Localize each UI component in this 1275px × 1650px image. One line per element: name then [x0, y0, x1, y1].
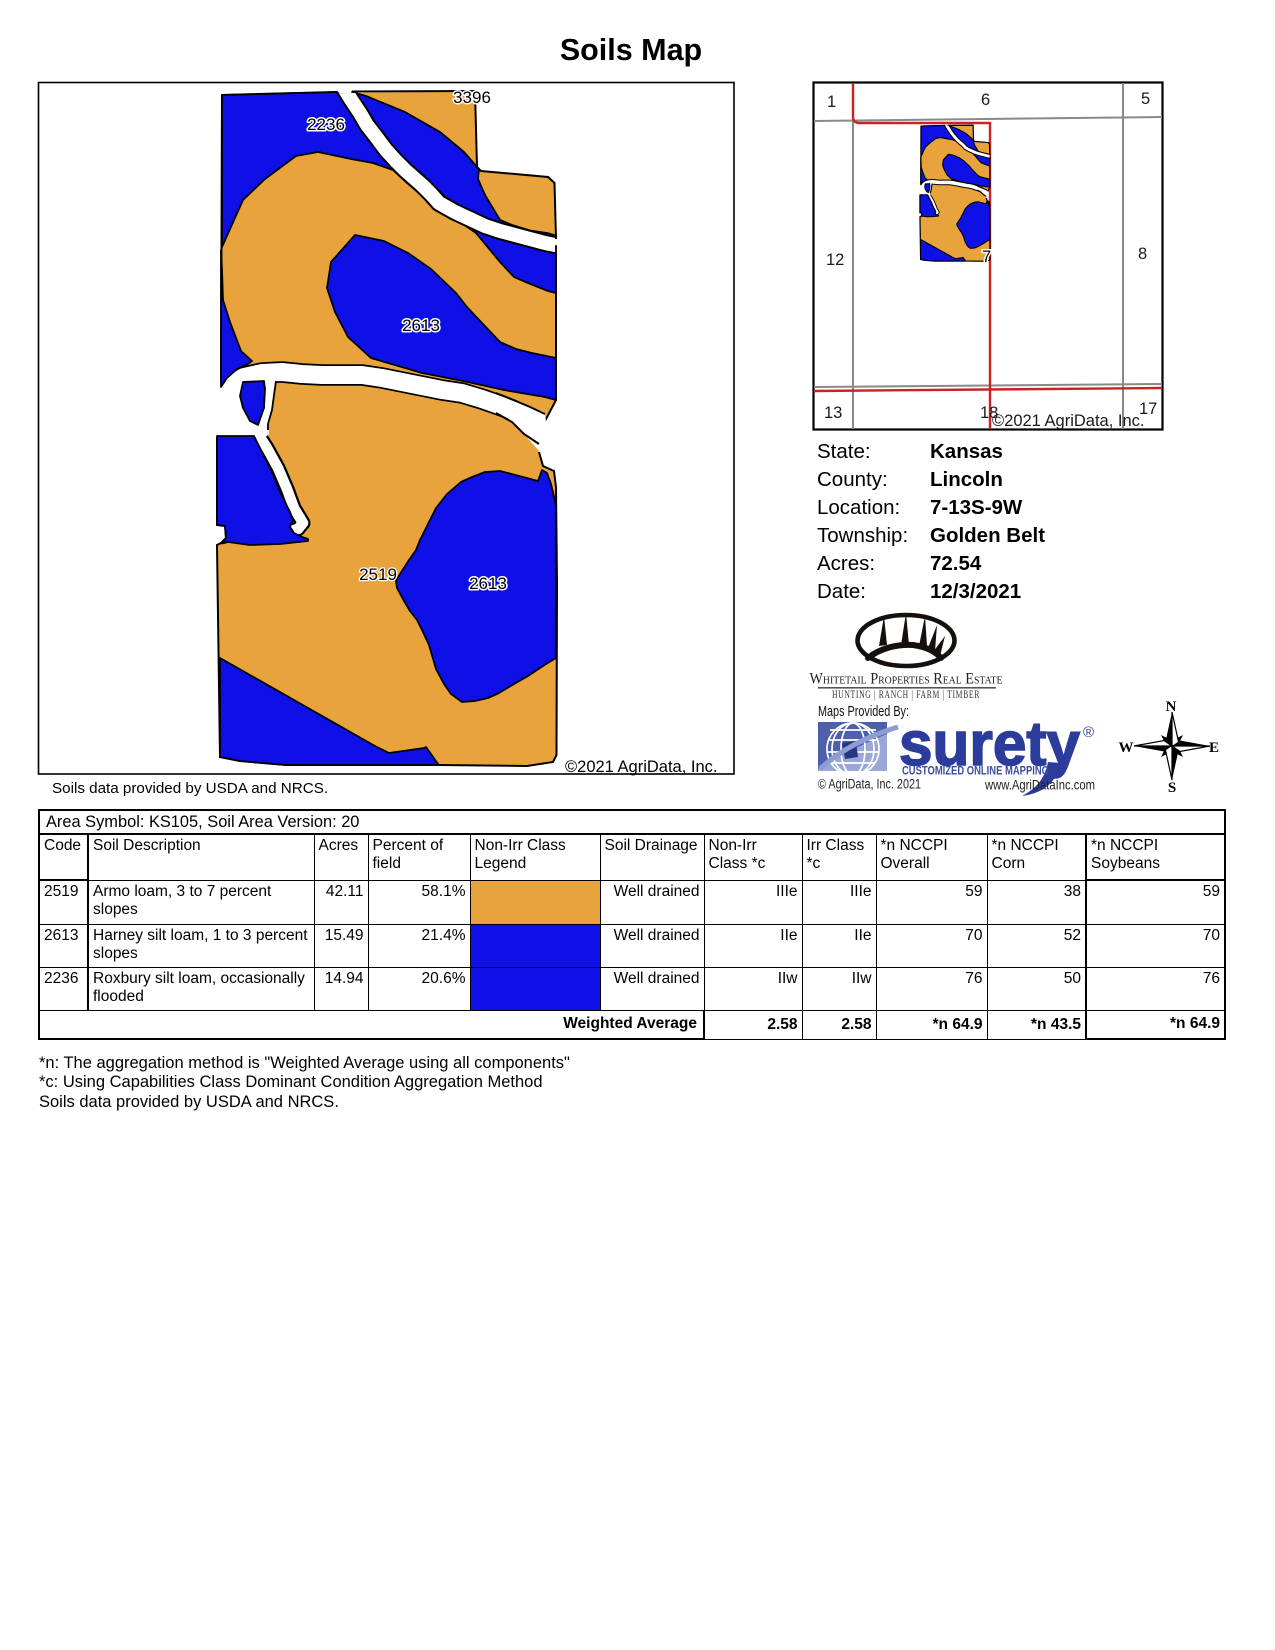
- svg-text:E: E: [1209, 740, 1219, 756]
- svg-text:www.AgriDataInc.com: www.AgriDataInc.com: [984, 777, 1095, 793]
- svg-text:7: 7: [982, 248, 991, 266]
- svg-text:6: 6: [981, 91, 990, 109]
- svg-text:©2021 AgriData, Inc.: ©2021 AgriData, Inc.: [992, 412, 1145, 430]
- svg-text:13: 13: [824, 404, 842, 422]
- svg-text:8: 8: [1138, 245, 1147, 263]
- svg-text:HUNTING | RANCH | FARM | TIMBE: HUNTING | RANCH | FARM | TIMBER: [832, 689, 980, 701]
- svg-text:W: W: [1119, 740, 1134, 756]
- svg-text:N: N: [1166, 699, 1177, 715]
- svg-text:S: S: [1168, 780, 1176, 796]
- svg-text:Maps Provided By:: Maps Provided By:: [818, 704, 909, 720]
- svg-text:Whitetail Properties Real Esta: Whitetail Properties Real Estate: [810, 671, 1003, 688]
- svg-text:1: 1: [827, 93, 836, 111]
- svg-text:2613: 2613: [469, 574, 507, 593]
- svg-text:© AgriData, Inc. 2021: © AgriData, Inc. 2021: [818, 777, 921, 792]
- svg-text:®: ®: [1083, 724, 1094, 741]
- svg-text:5: 5: [1141, 90, 1150, 108]
- svg-text:12: 12: [826, 251, 844, 269]
- svg-text:2519: 2519: [359, 565, 397, 584]
